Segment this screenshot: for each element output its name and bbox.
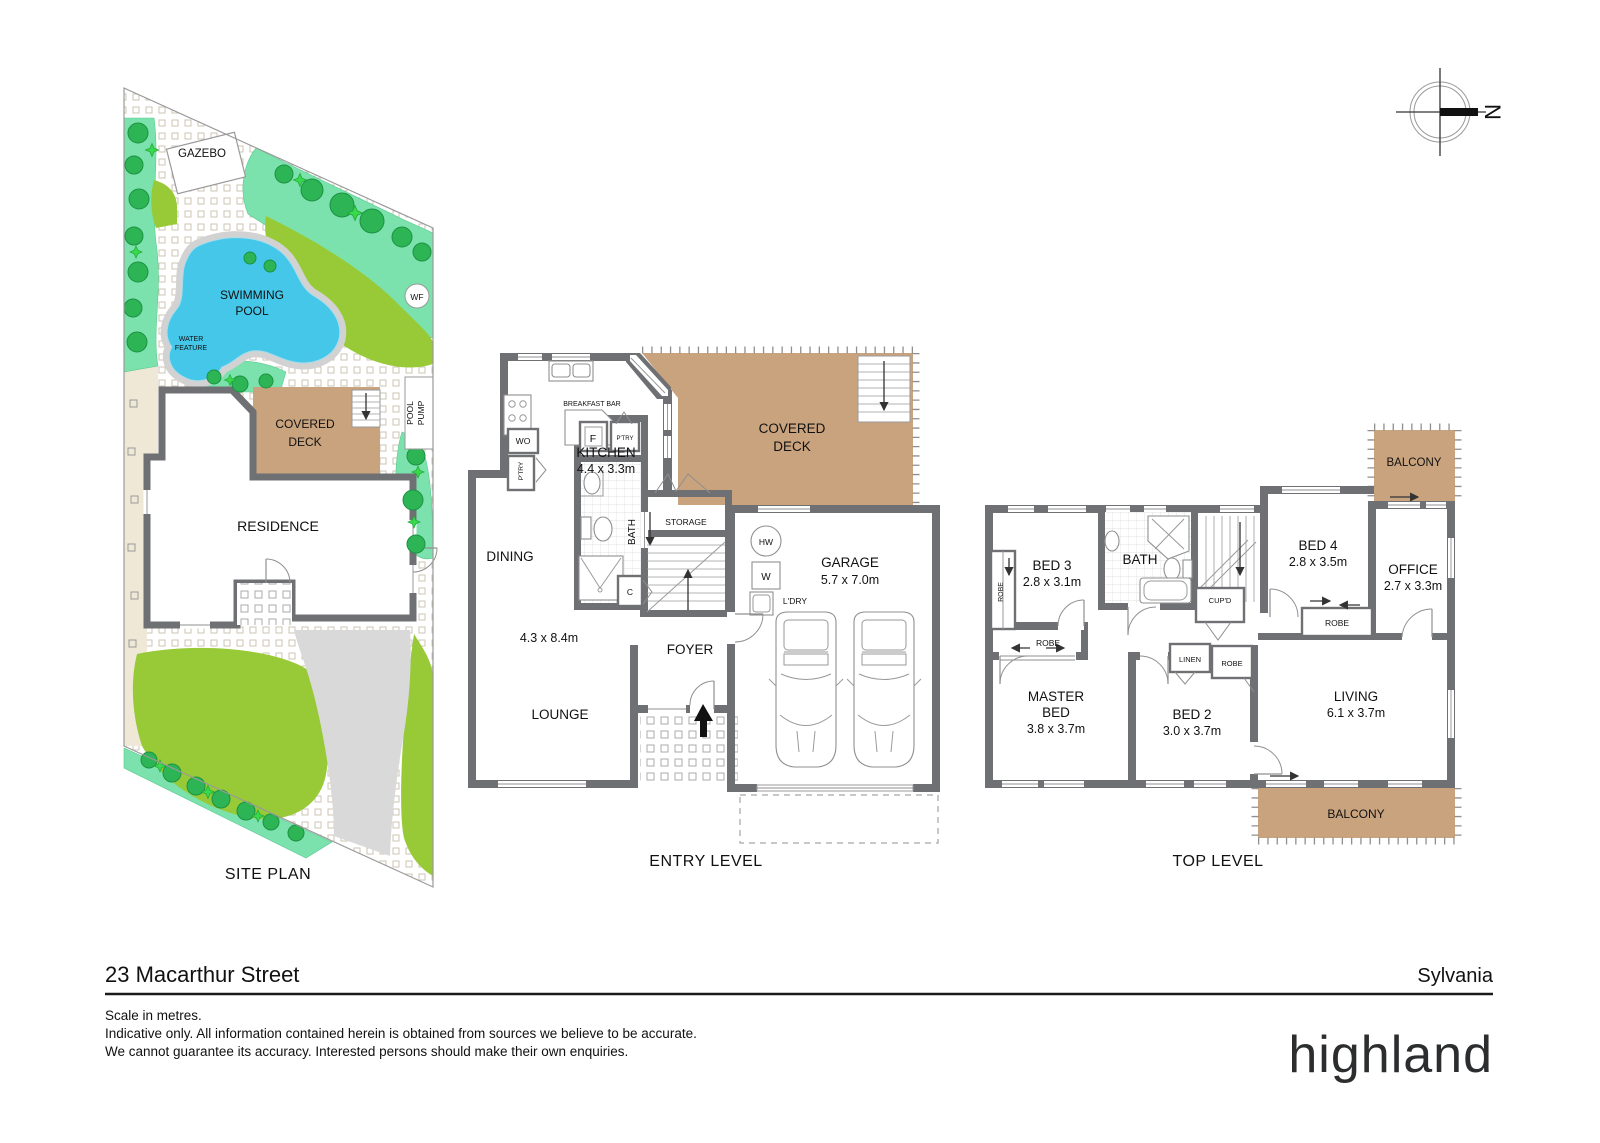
driveway-outline [740,795,938,843]
bed3-dims: 2.8 x 3.1m [1023,575,1081,589]
wf-label: WF [410,292,423,302]
disclaimer-line-1: Indicative only. All information contain… [105,1026,697,1041]
entry-bath-label: BATH [627,519,638,545]
cupboard-label: C [627,587,633,597]
site-deck-stairs [352,390,380,427]
kitchen-label: KITCHEN [576,445,635,460]
toilet-icon [594,517,612,541]
pantry-left-label: P'TRY [518,461,525,480]
pool-pump-label-2: PUMP [416,400,426,425]
office-label: OFFICE [1388,562,1438,577]
fridge-label: F [590,433,596,445]
entry-level-title: ENTRY LEVEL [649,853,762,870]
bed4-robe-label: ROBE [1325,618,1349,628]
top-level-plan: BED 3 2.8 x 3.1m ROBE BATH CUP'D BED 4 2… [985,427,1458,870]
floorplan-page: N [0,0,1600,1143]
pantry-right-label: P'TRY [616,436,633,442]
site-deck-label-2: DECK [288,435,321,449]
scale-note: Scale in metres. [105,1008,202,1023]
balcony-top-label: BALCONY [1387,457,1442,469]
entry-deck-label-2: DECK [773,439,811,454]
water-feature-label-1: WATER [179,336,204,343]
cupd-label: CUP'D [1209,596,1232,605]
basin-icon [1105,531,1119,551]
pool-pump-label-1: POOL [405,401,415,425]
office-dims: 2.7 x 3.3m [1384,579,1442,593]
hot-water-label: HW [759,537,773,547]
footer: 23 Macarthur Street Sylvania Scale in me… [105,962,1494,1084]
entry-deck-label-1: COVERED [759,421,826,436]
site-deck-label-1: COVERED [275,417,335,431]
top-level-title: TOP LEVEL [1172,853,1263,870]
kitchen-dims: 4.4 x 3.3m [577,462,635,476]
floorplan-svg: N [0,0,1600,1143]
washer-label: W [761,572,771,583]
dining-label: DINING [486,549,533,564]
cupd-box [1196,588,1244,622]
master-label-1: MASTER [1028,689,1085,704]
living-label: LIVING [1334,689,1378,704]
storage-label: STORAGE [665,517,707,527]
entry-level-plan: BREAKFAST BAR KITCHEN 4.4 x 3.3m WO P'TR… [468,350,940,870]
linen-label: LINEN [1179,655,1201,664]
bed4-label: BED 4 [1298,538,1338,553]
laundry-label: L'DRY [783,596,807,606]
master-label-2: BED [1042,705,1070,720]
foyer-label: FOYER [667,642,714,657]
top-bath-label: BATH [1122,552,1157,567]
garage-label: GARAGE [821,555,879,570]
entry-porch [640,713,738,785]
bed3-label: BED 3 [1032,558,1071,573]
balcony-bottom-label: BALCONY [1327,807,1384,821]
compass-north-label: N [1480,104,1505,120]
entry-deck-stairs [858,356,910,422]
brand-logo: highland [1288,1026,1493,1084]
disclaimer-line-2: We cannot guarantee its accuracy. Intere… [105,1044,628,1059]
shower-icon [579,556,623,600]
site-plan: WF POOL PUMP GAZEBO SWIMMING POOL WATER … [124,88,437,887]
bed2-label: BED 2 [1172,707,1211,722]
bed2-dims: 3.0 x 3.7m [1163,724,1221,738]
address-label: 23 Macarthur Street [105,962,299,987]
breakfast-bar-label: BREAKFAST BAR [563,401,620,408]
water-feature-label-2: FEATURE [175,345,207,352]
compass-icon: N [1396,68,1505,156]
gazebo-label: GAZEBO [178,148,226,160]
garage-dims: 5.7 x 7.0m [821,573,879,587]
lounge-label: LOUNGE [531,707,588,722]
lounge-dims: 4.3 x 8.4m [520,631,578,645]
car-icon [769,612,843,767]
bed3-robe-label: ROBE [998,582,1005,602]
entry-stairs [647,542,725,612]
entry-doors [690,614,763,709]
living-dims: 6.1 x 3.7m [1327,706,1385,720]
toilet-icon [1164,558,1180,580]
bed4-dims: 2.8 x 3.5m [1289,555,1347,569]
wall-oven-label: WO [516,436,531,446]
residence-label: RESIDENCE [237,518,319,534]
site-plan-title: SITE PLAN [225,866,311,883]
car-icon [847,612,921,767]
pool-label-2: POOL [235,304,269,318]
residence-porch [237,583,292,625]
master-dims: 3.8 x 3.7m [1027,722,1085,736]
master-robe-label: ROBE [1036,638,1060,648]
bed2-robe-label: ROBE [1221,659,1242,668]
suburb-label: Sylvania [1417,965,1493,987]
pool-label-1: SWIMMING [220,288,284,302]
